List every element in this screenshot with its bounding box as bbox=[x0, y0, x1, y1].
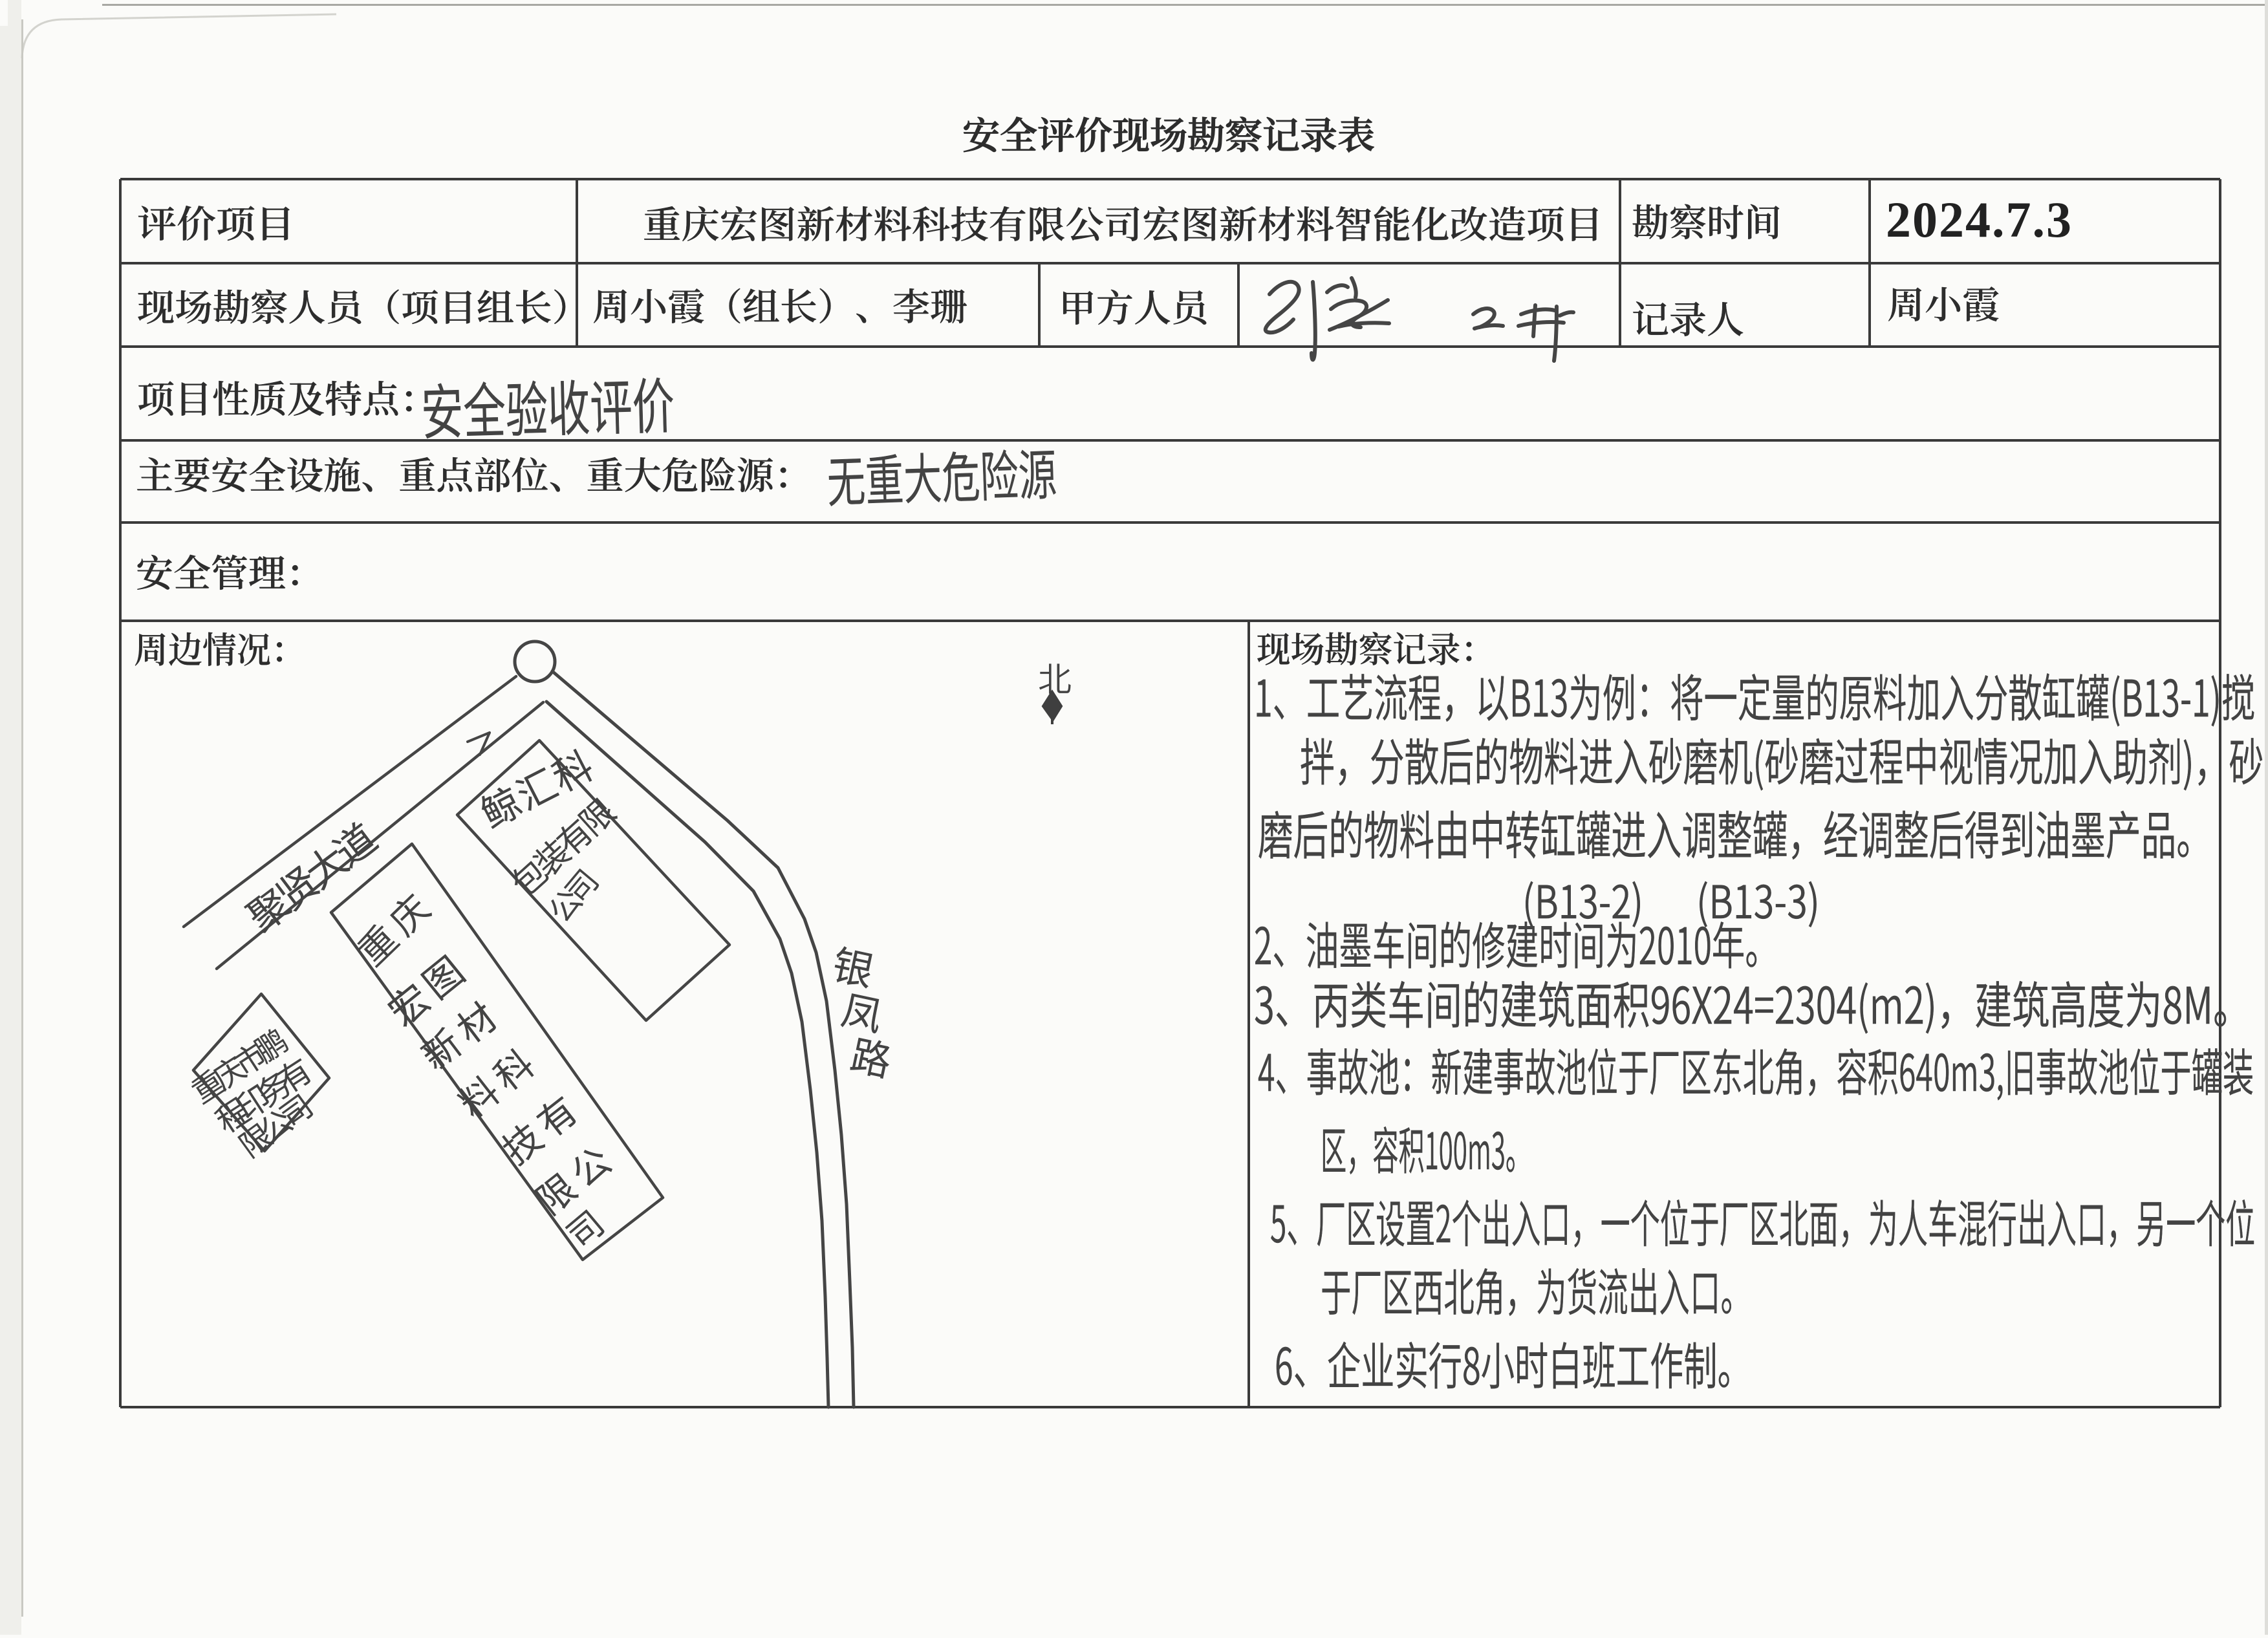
svg-text:2024.7.3: 2024.7.3 bbox=[1886, 191, 2073, 248]
